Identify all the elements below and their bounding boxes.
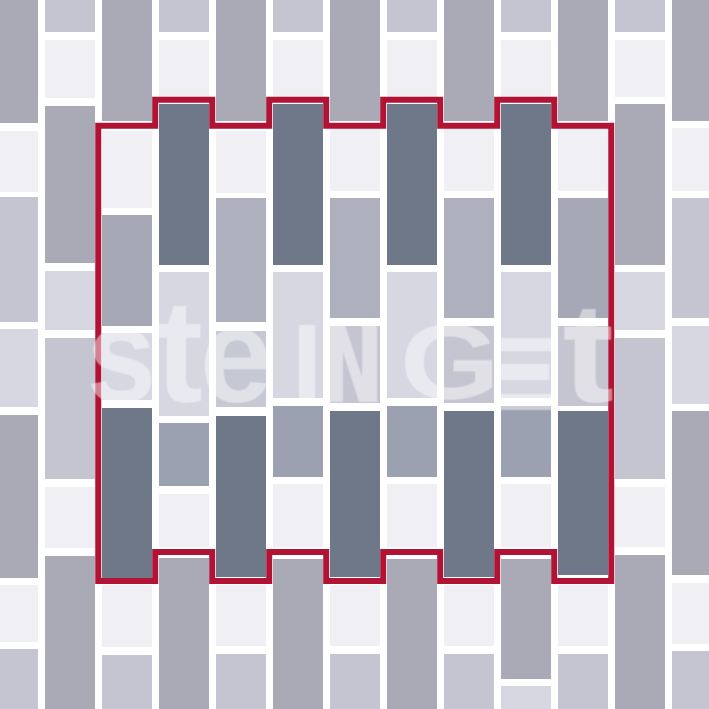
svg-text:G: G (400, 303, 500, 422)
svg-text:t: t (156, 268, 203, 433)
svg-text:e: e (200, 280, 273, 432)
svg-text:t: t (562, 274, 614, 432)
svg-text:s: s (87, 279, 157, 431)
